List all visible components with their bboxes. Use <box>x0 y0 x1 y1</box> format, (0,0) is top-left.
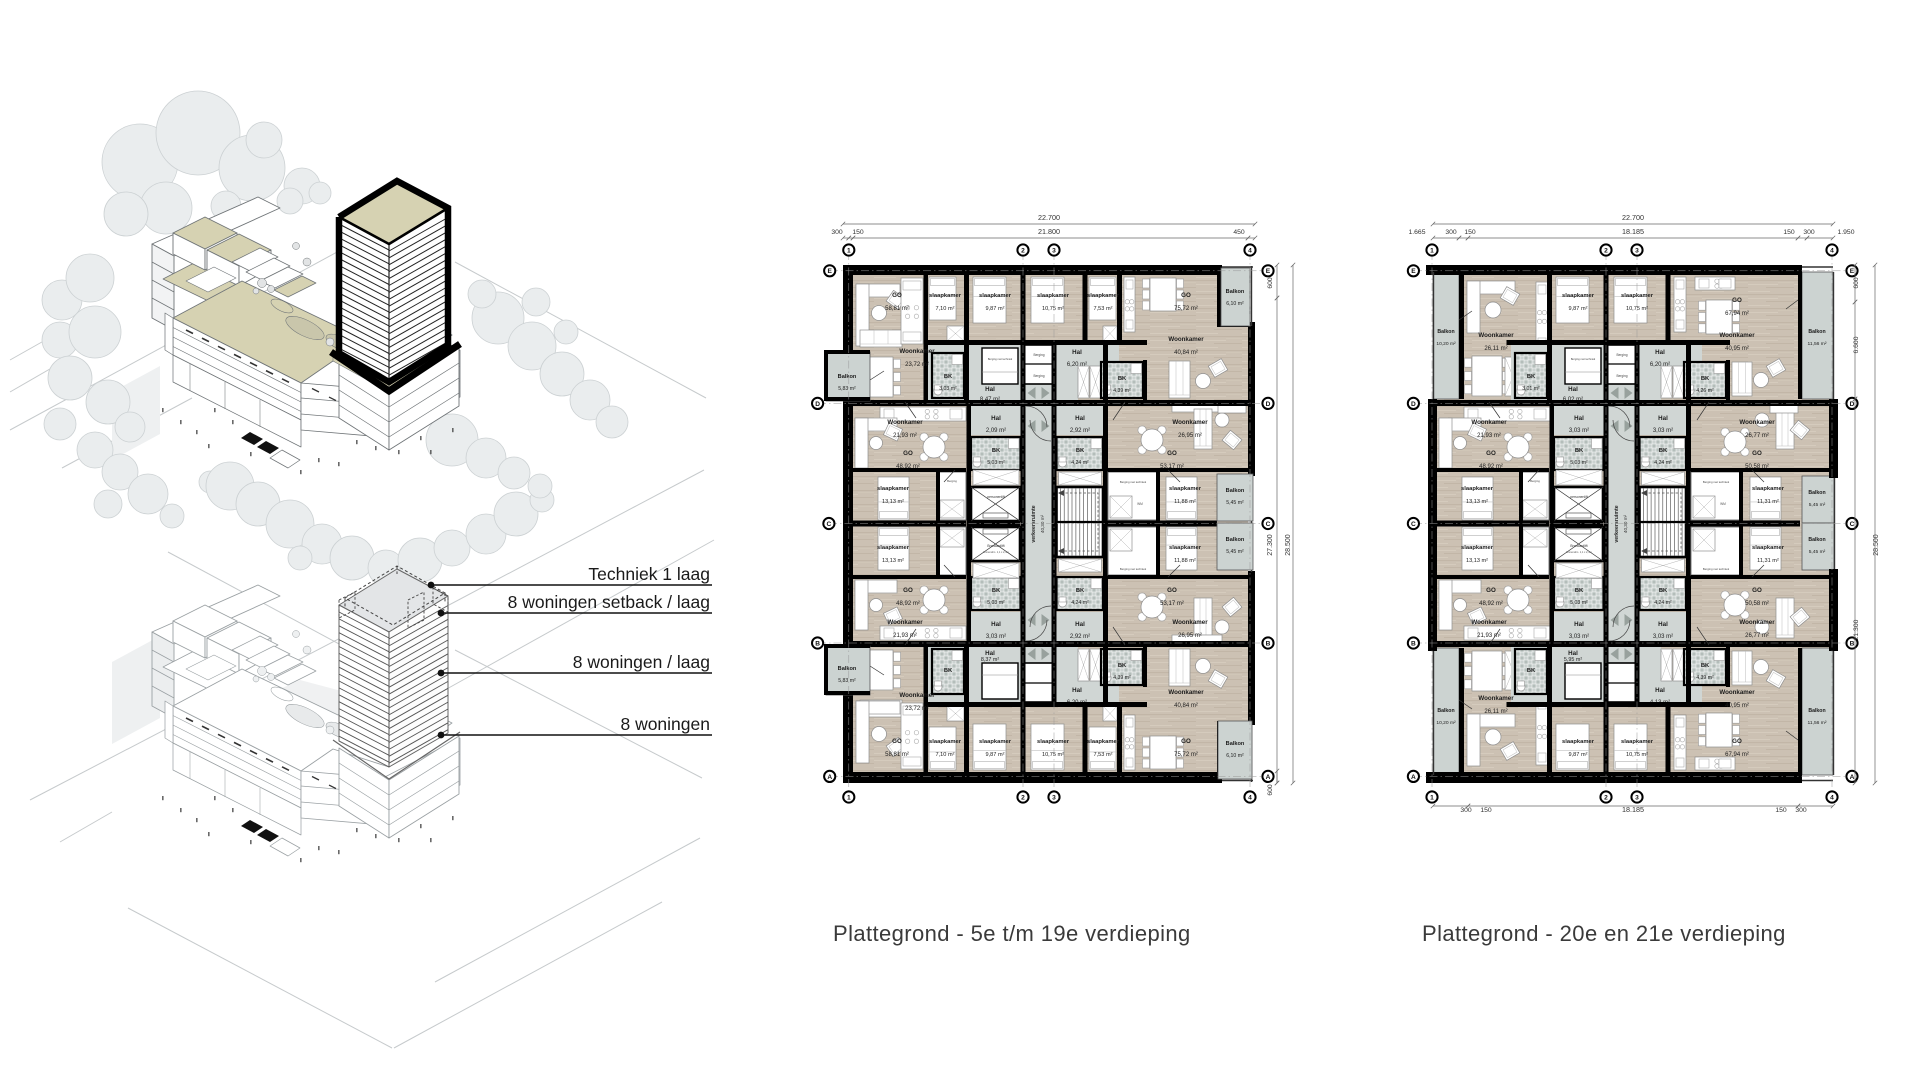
svg-text:48,92 m²: 48,92 m² <box>896 464 920 470</box>
svg-text:BK: BK <box>992 588 1001 594</box>
svg-text:GO: GO <box>1732 297 1742 304</box>
svg-text:Balkon: Balkon <box>1437 329 1454 335</box>
svg-text:4,39 m²: 4,39 m² <box>1696 675 1714 681</box>
svg-text:Berging: Berging <box>1034 353 1045 357</box>
svg-text:9,87 m²: 9,87 m² <box>986 752 1005 758</box>
svg-text:300: 300 <box>1803 229 1815 236</box>
svg-text:10,75 m²: 10,75 m² <box>1042 752 1064 758</box>
svg-text:5,03 m²: 5,03 m² <box>1570 460 1588 466</box>
svg-text:slaapkamer: slaapkamer <box>1621 739 1654 745</box>
svg-text:Balkon: Balkon <box>1226 537 1245 543</box>
svg-text:4,39 m²: 4,39 m² <box>1113 388 1131 394</box>
svg-text:26,77 m²: 26,77 m² <box>1745 633 1769 639</box>
svg-text:Berging: Berging <box>1034 374 1045 378</box>
svg-text:9,87 m²: 9,87 m² <box>1569 306 1588 312</box>
svg-text:C: C <box>1850 521 1855 528</box>
svg-text:3,01 m²: 3,01 m² <box>1522 386 1540 392</box>
svg-text:26,11 m²: 26,11 m² <box>1484 346 1507 352</box>
svg-text:13,13 m²: 13,13 m² <box>882 499 904 505</box>
svg-text:A: A <box>827 774 832 781</box>
svg-text:D: D <box>1266 401 1271 408</box>
svg-text:9,87 m²: 9,87 m² <box>986 306 1005 312</box>
svg-text:B: B <box>1266 640 1271 647</box>
svg-text:21.300: 21.300 <box>1853 619 1860 640</box>
svg-text:BK: BK <box>1118 663 1127 669</box>
svg-text:3: 3 <box>1635 794 1639 801</box>
svg-text:2: 2 <box>1604 794 1608 801</box>
svg-text:4,39 m²: 4,39 m² <box>1113 675 1131 681</box>
svg-text:Woonkamer: Woonkamer <box>899 692 935 699</box>
svg-text:Hal: Hal <box>1655 349 1665 356</box>
svg-text:Woonkamer: Woonkamer <box>1471 619 1507 626</box>
svg-text:1.950: 1.950 <box>1837 229 1854 236</box>
svg-text:Balkon: Balkon <box>1437 708 1454 714</box>
svg-text:BK: BK <box>1659 448 1668 454</box>
svg-text:50,58 m²: 50,58 m² <box>1745 601 1769 607</box>
svg-text:300: 300 <box>831 229 843 236</box>
svg-text:10,20 m²: 10,20 m² <box>1436 341 1456 347</box>
svg-text:8 woningen: 8 woningen <box>620 714 710 734</box>
svg-text:40,30 m²: 40,30 m² <box>1623 514 1628 533</box>
svg-text:11,56 m²: 11,56 m² <box>1808 341 1827 347</box>
svg-text:9,87 m²: 9,87 m² <box>1569 752 1588 758</box>
svg-text:Berging met techniek: Berging met techniek <box>1703 480 1730 484</box>
svg-text:21,93 m²: 21,93 m² <box>1477 433 1501 439</box>
svg-text:binnenafm. 1,1 x 2,1m: binnenafm. 1,1 x 2,1m <box>983 550 1009 554</box>
svg-text:Woonkamer: Woonkamer <box>1172 619 1208 626</box>
svg-text:D: D <box>815 401 820 408</box>
svg-text:GO: GO <box>892 292 902 299</box>
svg-text:2: 2 <box>1604 247 1608 254</box>
svg-text:4: 4 <box>1248 794 1252 801</box>
svg-text:E: E <box>1411 268 1416 275</box>
svg-text:3,03 m²: 3,03 m² <box>939 386 957 392</box>
svg-text:slaapkamer: slaapkamer <box>1037 293 1070 299</box>
svg-text:Hal: Hal <box>1655 687 1665 694</box>
svg-text:Woonkamer: Woonkamer <box>887 619 923 626</box>
svg-text:slaapkamer: slaapkamer <box>1087 293 1120 299</box>
svg-text:26,95 m²: 26,95 m² <box>1178 633 1202 639</box>
svg-text:BK: BK <box>1076 448 1085 454</box>
svg-text:21.800: 21.800 <box>1038 227 1060 236</box>
svg-text:GO: GO <box>1752 450 1762 457</box>
svg-text:Balkon: Balkon <box>1226 741 1245 747</box>
svg-text:10,20 m²: 10,20 m² <box>1436 720 1456 726</box>
svg-text:150: 150 <box>1783 229 1795 236</box>
svg-text:Balkon: Balkon <box>1808 329 1825 335</box>
svg-text:7,53 m²: 7,53 m² <box>1094 752 1113 758</box>
svg-text:BK: BK <box>1575 588 1584 594</box>
svg-text:600: 600 <box>1267 277 1274 289</box>
svg-text:4,26 m²: 4,26 m² <box>1696 388 1714 394</box>
svg-text:13,13 m²: 13,13 m² <box>1466 499 1488 505</box>
svg-text:53,17 m²: 53,17 m² <box>1160 601 1184 607</box>
svg-text:personenlift: personenlift <box>987 495 1005 499</box>
svg-text:5,45 m²: 5,45 m² <box>1226 549 1244 555</box>
svg-text:150: 150 <box>1480 807 1492 814</box>
svg-text:slaapkamer: slaapkamer <box>979 739 1012 745</box>
svg-text:Berging: Berging <box>947 479 957 483</box>
svg-text:WM: WM <box>1137 502 1143 506</box>
svg-text:Woonkamer: Woonkamer <box>1478 695 1514 702</box>
svg-text:D: D <box>1411 401 1416 408</box>
svg-text:BK: BK <box>1076 588 1085 594</box>
svg-text:58,81 m²: 58,81 m² <box>885 306 909 312</box>
svg-text:Woonkamer: Woonkamer <box>1471 419 1507 426</box>
svg-text:5,03 m²: 5,03 m² <box>1570 600 1588 606</box>
svg-text:Balkon: Balkon <box>1808 537 1825 543</box>
svg-text:binnenafm. 1,1 x 2,1m: binnenafm. 1,1 x 2,1m <box>1566 550 1592 554</box>
svg-text:Berging met techniek: Berging met techniek <box>1703 567 1730 571</box>
svg-text:Balkon: Balkon <box>1226 289 1245 295</box>
svg-text:verkeersruimte: verkeersruimte <box>1031 505 1037 542</box>
svg-text:2,92 m²: 2,92 m² <box>1070 428 1090 434</box>
svg-text:Hal: Hal <box>1568 386 1578 393</box>
svg-text:6,10 m²: 6,10 m² <box>1226 753 1244 759</box>
svg-text:slaapkamer: slaapkamer <box>1037 739 1070 745</box>
svg-text:Hal: Hal <box>1072 349 1082 356</box>
svg-text:67,94 m²: 67,94 m² <box>1725 311 1749 317</box>
svg-text:8,37 m²: 8,37 m² <box>981 657 999 663</box>
svg-text:Hal: Hal <box>1658 415 1668 422</box>
svg-text:GO: GO <box>1167 587 1177 594</box>
svg-text:23,72 m²: 23,72 m² <box>905 362 929 368</box>
svg-text:40,84 m²: 40,84 m² <box>1174 350 1198 356</box>
svg-text:GO: GO <box>1732 738 1742 745</box>
svg-text:Woonkamer: Woonkamer <box>1719 332 1755 339</box>
svg-text:11,31 m²: 11,31 m² <box>1757 558 1779 564</box>
svg-text:slaapkamer: slaapkamer <box>929 739 962 745</box>
svg-text:450: 450 <box>1233 229 1245 236</box>
svg-text:7,10 m²: 7,10 m² <box>936 306 955 312</box>
svg-text:22.700: 22.700 <box>1038 213 1060 222</box>
svg-text:BK: BK <box>1527 374 1536 380</box>
svg-text:BK: BK <box>944 374 953 380</box>
svg-text:slaapkamer: slaapkamer <box>1752 486 1785 492</box>
svg-text:75,72 m²: 75,72 m² <box>1174 752 1198 758</box>
svg-text:BK: BK <box>992 448 1001 454</box>
svg-text:3,03 m²: 3,03 m² <box>1653 428 1673 434</box>
svg-text:23,72 m²: 23,72 m² <box>905 706 929 712</box>
svg-text:5,83 m²: 5,83 m² <box>838 678 856 684</box>
svg-text:slaapkamer: slaapkamer <box>929 293 962 299</box>
svg-text:4: 4 <box>1830 794 1834 801</box>
svg-text:11,88 m²: 11,88 m² <box>1174 499 1196 505</box>
svg-text:E: E <box>1850 268 1855 275</box>
svg-text:Hal: Hal <box>1072 687 1082 694</box>
svg-text:13,13 m²: 13,13 m² <box>1466 558 1488 564</box>
svg-text:slaapkamer: slaapkamer <box>1087 739 1120 745</box>
svg-text:Berging met techniek: Berging met techniek <box>988 357 1013 361</box>
svg-text:slaapkamer: slaapkamer <box>1562 739 1595 745</box>
svg-text:4: 4 <box>1248 247 1252 254</box>
svg-text:150: 150 <box>1464 229 1476 236</box>
svg-text:11,56 m²: 11,56 m² <box>1808 720 1827 726</box>
svg-text:53,17 m²: 53,17 m² <box>1160 464 1184 470</box>
svg-text:600: 600 <box>1853 277 1860 289</box>
svg-text:Berging: Berging <box>1530 479 1540 483</box>
svg-text:7,10 m²: 7,10 m² <box>936 752 955 758</box>
svg-text:slaapkamer: slaapkamer <box>877 486 910 492</box>
svg-text:Balkon: Balkon <box>838 666 857 672</box>
svg-text:1.665: 1.665 <box>1408 229 1425 236</box>
svg-text:Hal: Hal <box>1658 621 1668 628</box>
svg-text:22.700: 22.700 <box>1622 213 1644 222</box>
svg-text:300: 300 <box>1445 229 1457 236</box>
svg-text:48,92 m²: 48,92 m² <box>1479 464 1503 470</box>
svg-text:slaapkamer: slaapkamer <box>979 293 1012 299</box>
svg-text:Hal: Hal <box>1075 621 1085 628</box>
svg-text:B: B <box>1411 640 1416 647</box>
svg-text:Hal: Hal <box>991 415 1001 422</box>
svg-text:21,93 m²: 21,93 m² <box>1477 633 1501 639</box>
svg-text:E: E <box>827 268 832 275</box>
svg-text:slaapkamer: slaapkamer <box>1562 293 1595 299</box>
svg-text:A: A <box>1850 774 1855 781</box>
svg-text:Woonkamer: Woonkamer <box>887 419 923 426</box>
svg-text:GO: GO <box>1167 450 1177 457</box>
svg-text:BK: BK <box>1701 663 1710 669</box>
svg-text:Techniek 1 laag: Techniek 1 laag <box>588 564 710 584</box>
svg-text:48,92 m²: 48,92 m² <box>1479 601 1503 607</box>
svg-text:Balkon: Balkon <box>838 374 857 380</box>
svg-text:3: 3 <box>1052 794 1056 801</box>
svg-text:58,81 m²: 58,81 m² <box>885 752 909 758</box>
svg-text:Hal: Hal <box>1574 621 1584 628</box>
svg-text:E: E <box>1266 268 1271 275</box>
svg-text:8 woningen setback / laag: 8 woningen setback / laag <box>508 592 710 612</box>
svg-text:11,88 m²: 11,88 m² <box>1174 558 1196 564</box>
svg-text:GO: GO <box>1486 587 1496 594</box>
svg-text:40,95 m²: 40,95 m² <box>1725 346 1749 352</box>
svg-text:150: 150 <box>852 229 864 236</box>
svg-text:Berging met techniek: Berging met techniek <box>1571 357 1596 361</box>
svg-text:4,24 m²: 4,24 m² <box>1071 600 1089 606</box>
svg-text:6,10 m²: 6,10 m² <box>1226 301 1244 307</box>
svg-text:GO: GO <box>903 587 913 594</box>
svg-text:Hal: Hal <box>1574 415 1584 422</box>
svg-text:Woonkamer: Woonkamer <box>1168 689 1204 696</box>
svg-text:40,30 m²: 40,30 m² <box>1040 514 1045 533</box>
svg-text:slaapkamer: slaapkamer <box>1169 545 1202 551</box>
svg-text:slaapkamer: slaapkamer <box>1169 486 1202 492</box>
svg-text:28.500: 28.500 <box>1873 534 1880 556</box>
svg-text:2: 2 <box>1021 794 1025 801</box>
svg-text:Woonkamer: Woonkamer <box>899 348 935 355</box>
svg-text:BK: BK <box>1575 448 1584 454</box>
svg-text:Balkon: Balkon <box>1226 488 1245 494</box>
svg-text:Plattegrond - 5e t/m 19e verdi: Plattegrond - 5e t/m 19e verdieping <box>833 921 1191 946</box>
svg-text:Hal: Hal <box>985 386 995 393</box>
svg-text:26,11 m²: 26,11 m² <box>1484 709 1507 715</box>
svg-text:50,58 m²: 50,58 m² <box>1745 464 1769 470</box>
svg-text:Berging: Berging <box>1617 374 1628 378</box>
svg-text:5,95 m²: 5,95 m² <box>1564 657 1582 663</box>
svg-text:Woonkamer: Woonkamer <box>1739 619 1775 626</box>
svg-text:3: 3 <box>1635 247 1639 254</box>
svg-text:150: 150 <box>1775 807 1787 814</box>
svg-text:GO: GO <box>1486 450 1496 457</box>
svg-text:1: 1 <box>1430 247 1434 254</box>
svg-text:4: 4 <box>1830 247 1834 254</box>
svg-text:Brancardlift: Brancardlift <box>1570 544 1587 548</box>
svg-text:10,75 m²: 10,75 m² <box>1042 306 1064 312</box>
svg-text:GO: GO <box>1752 587 1762 594</box>
svg-text:slaapkamer: slaapkamer <box>1752 545 1785 551</box>
svg-text:300: 300 <box>1795 807 1807 814</box>
svg-text:Woonkamer: Woonkamer <box>1172 419 1208 426</box>
svg-text:1: 1 <box>847 247 851 254</box>
svg-text:BK: BK <box>944 668 953 674</box>
svg-text:slaapkamer: slaapkamer <box>877 545 910 551</box>
svg-text:40,95 m²: 40,95 m² <box>1725 703 1749 709</box>
svg-text:18.185: 18.185 <box>1622 227 1644 236</box>
svg-text:21,93 m²: 21,93 m² <box>893 633 917 639</box>
svg-text:personenlift: personenlift <box>1570 495 1588 499</box>
svg-text:5,03 m²: 5,03 m² <box>987 600 1005 606</box>
svg-text:Berging met techniek: Berging met techniek <box>1120 480 1147 484</box>
svg-text:4,24 m²: 4,24 m² <box>1071 460 1089 466</box>
svg-text:verkeersruimte: verkeersruimte <box>1614 505 1620 542</box>
svg-text:Hal: Hal <box>991 621 1001 628</box>
svg-text:Woonkamer: Woonkamer <box>1478 332 1514 339</box>
svg-text:5,45 m²: 5,45 m² <box>1809 549 1826 555</box>
svg-text:BK: BK <box>1118 376 1127 382</box>
svg-text:slaapkamer: slaapkamer <box>1461 545 1494 551</box>
svg-text:GO: GO <box>903 450 913 457</box>
svg-text:1: 1 <box>1430 794 1434 801</box>
svg-text:8 woningen / laag: 8 woningen / laag <box>573 652 710 672</box>
svg-text:Hal: Hal <box>985 650 995 657</box>
svg-text:GO: GO <box>1181 292 1191 299</box>
svg-text:67,94 m²: 67,94 m² <box>1725 752 1749 758</box>
svg-text:26,77 m²: 26,77 m² <box>1745 433 1769 439</box>
svg-text:BK: BK <box>1527 668 1536 674</box>
svg-text:GO: GO <box>892 738 902 745</box>
svg-text:3,03 m²: 3,03 m² <box>986 634 1006 640</box>
svg-text:5,45 m²: 5,45 m² <box>1226 500 1244 506</box>
svg-text:Plattegrond - 20e en 21e verdi: Plattegrond - 20e en 21e verdieping <box>1422 921 1786 946</box>
svg-text:13,13 m²: 13,13 m² <box>882 558 904 564</box>
svg-text:3,03 m²: 3,03 m² <box>1653 634 1673 640</box>
svg-text:5,03 m²: 5,03 m² <box>987 460 1005 466</box>
svg-text:4,24 m²: 4,24 m² <box>1654 460 1672 466</box>
svg-text:B: B <box>815 640 820 647</box>
svg-text:GO: GO <box>1181 738 1191 745</box>
svg-text:BK: BK <box>1659 588 1668 594</box>
svg-text:48,92 m²: 48,92 m² <box>896 601 920 607</box>
svg-text:28.500: 28.500 <box>1285 534 1292 556</box>
svg-text:4,24 m²: 4,24 m² <box>1654 600 1672 606</box>
svg-text:Woonkamer: Woonkamer <box>1168 336 1204 343</box>
svg-text:2: 2 <box>1021 247 1025 254</box>
svg-text:7,53 m²: 7,53 m² <box>1094 306 1113 312</box>
svg-text:Brancardlift: Brancardlift <box>987 544 1004 548</box>
svg-text:Hal: Hal <box>1075 415 1085 422</box>
svg-text:A: A <box>1266 774 1271 781</box>
svg-text:Balkon: Balkon <box>1808 708 1825 714</box>
svg-text:11,31 m²: 11,31 m² <box>1757 499 1779 505</box>
svg-text:A: A <box>1411 774 1416 781</box>
svg-text:C: C <box>1266 521 1271 528</box>
svg-text:2,09 m²: 2,09 m² <box>986 428 1006 434</box>
svg-text:BK: BK <box>1701 376 1710 382</box>
svg-text:slaapkamer: slaapkamer <box>1461 486 1494 492</box>
svg-text:5,45 m²: 5,45 m² <box>1809 502 1826 508</box>
svg-text:5,83 m²: 5,83 m² <box>838 386 856 392</box>
svg-text:75,72 m²: 75,72 m² <box>1174 306 1198 312</box>
svg-text:C: C <box>827 521 832 528</box>
svg-text:B: B <box>1850 640 1855 647</box>
svg-text:Woonkamer: Woonkamer <box>1739 419 1775 426</box>
svg-text:C: C <box>1411 521 1416 528</box>
svg-text:3: 3 <box>1052 247 1056 254</box>
svg-text:Berging met techniek: Berging met techniek <box>1120 567 1147 571</box>
svg-text:600: 600 <box>1267 784 1274 796</box>
svg-text:Balkon: Balkon <box>1808 490 1825 496</box>
svg-text:10,75 m²: 10,75 m² <box>1626 306 1648 312</box>
svg-text:6.600: 6.600 <box>1853 336 1860 353</box>
svg-text:3,03 m²: 3,03 m² <box>1569 634 1589 640</box>
svg-text:WM: WM <box>1720 502 1726 506</box>
svg-text:27.300: 27.300 <box>1267 534 1274 556</box>
svg-text:26,95 m²: 26,95 m² <box>1178 433 1202 439</box>
svg-text:Hal: Hal <box>1568 650 1578 657</box>
svg-text:2,92 m²: 2,92 m² <box>1070 634 1090 640</box>
svg-text:Berging: Berging <box>1617 353 1628 357</box>
svg-text:D: D <box>1850 401 1855 408</box>
svg-text:Woonkamer: Woonkamer <box>1719 689 1755 696</box>
svg-text:1: 1 <box>847 794 851 801</box>
svg-text:3,03 m²: 3,03 m² <box>1569 428 1589 434</box>
svg-text:40,84 m²: 40,84 m² <box>1174 703 1198 709</box>
svg-text:slaapkamer: slaapkamer <box>1621 293 1654 299</box>
svg-text:21,93 m²: 21,93 m² <box>893 433 917 439</box>
